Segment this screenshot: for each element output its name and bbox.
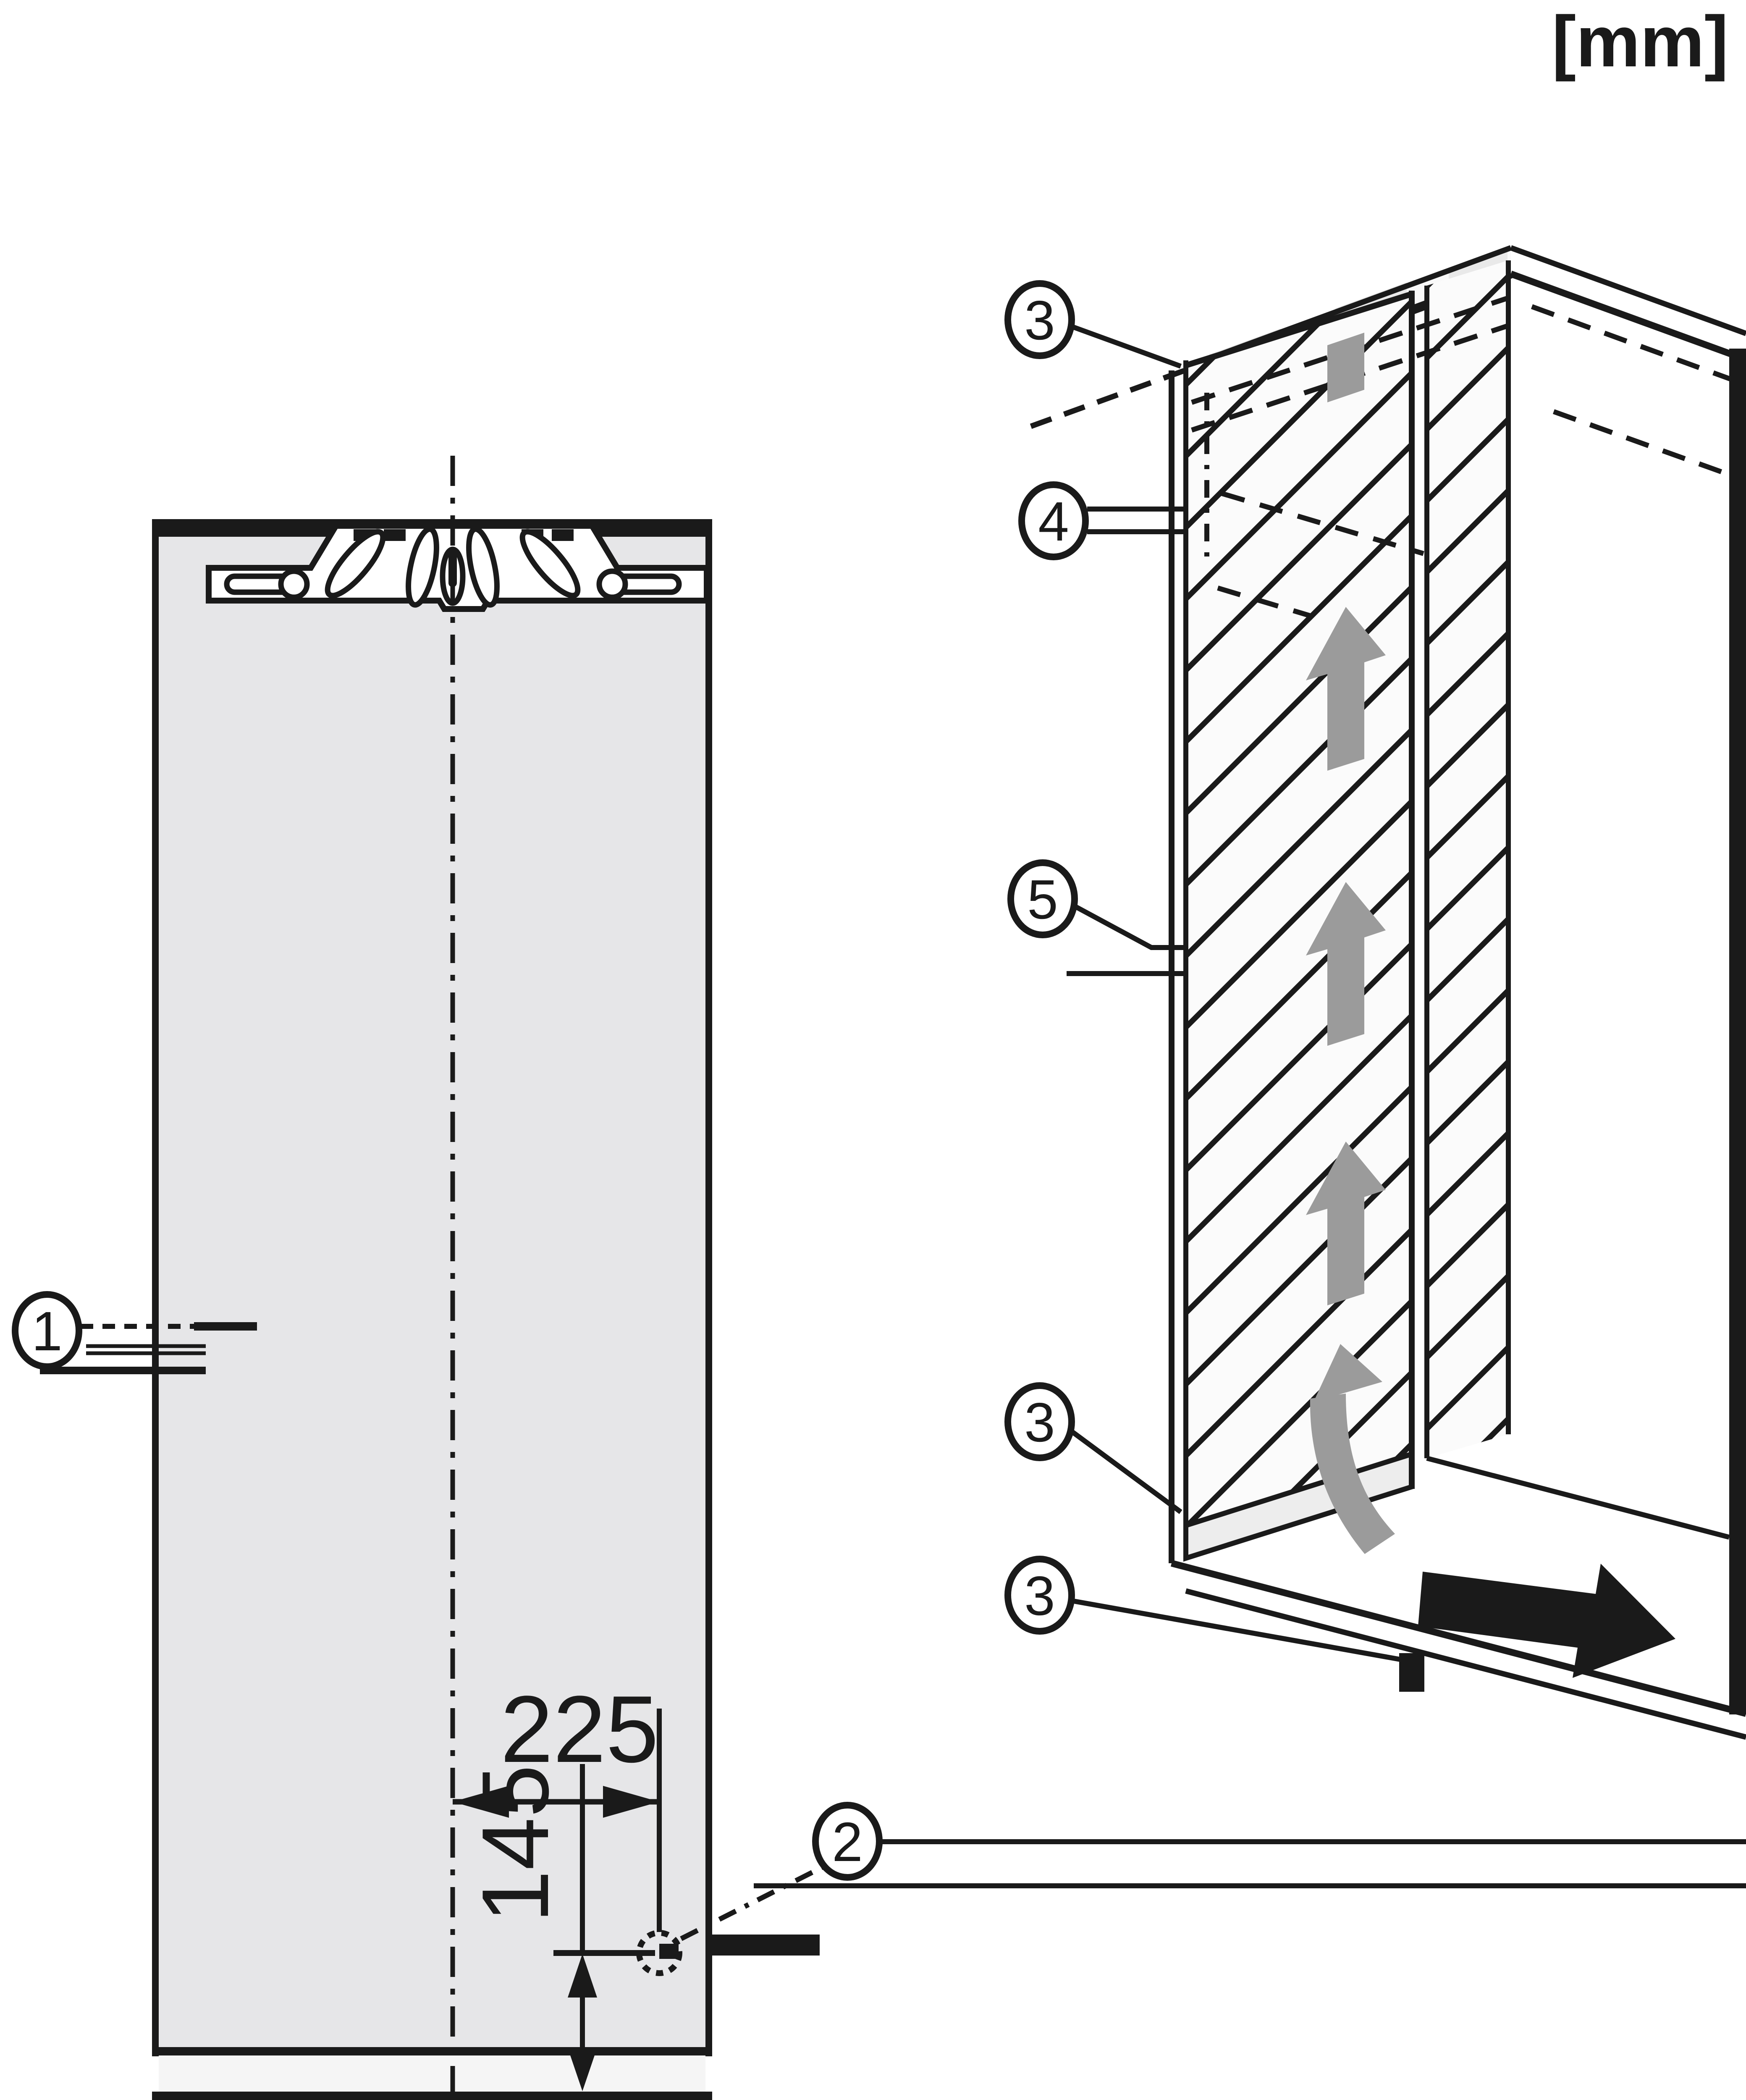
- panel-bottom-edge: [152, 2047, 712, 2055]
- plinth-strip: [159, 2055, 705, 2092]
- callout-1-label: 1: [31, 1300, 62, 1362]
- callout-3-top-label: 3: [1024, 289, 1055, 351]
- callout-3-bottom-label: 3: [1024, 1565, 1055, 1627]
- bracket-keyhole-left: [227, 571, 307, 597]
- plinth-bottom-edge: [152, 2092, 712, 2100]
- callout-3-mid-label: 3: [1024, 1391, 1055, 1453]
- callout-5: 5: [1011, 863, 1183, 974]
- callout-2: 2: [681, 1805, 1746, 1939]
- drill-point-edge-bar: [710, 1935, 820, 1956]
- dim-height-label: 145: [462, 1764, 568, 1923]
- callout-2-label: 2: [832, 1811, 863, 1873]
- callout-3-mid: 3: [1008, 1386, 1181, 1512]
- callout-3-top: 3: [1008, 283, 1181, 366]
- unit-label: [mm]: [1552, 1, 1728, 82]
- bracket-keyhole-right: [599, 571, 679, 597]
- callout-4-label: 4: [1038, 491, 1069, 552]
- cropped-right-wall: [1729, 349, 1746, 1714]
- installation-diagram: 225 145 1: [0, 0, 1746, 2100]
- hidden-edge-dashes-left: [1031, 368, 1192, 426]
- panel-right-edge: [705, 519, 712, 2056]
- callout-5-label: 5: [1027, 869, 1058, 930]
- panel-face: [157, 525, 707, 2050]
- niche-back-panel: [1427, 260, 1508, 1458]
- niche-isometric-view: 3 4 5 3 3: [1008, 246, 1746, 1737]
- drill-point-stub: [659, 1944, 679, 1959]
- bracket-tab: [384, 529, 406, 541]
- callout-4: 4: [1022, 485, 1183, 557]
- panel-left-edge: [152, 519, 159, 2056]
- niche-foot: [1399, 1653, 1424, 1692]
- bracket-tab: [552, 529, 574, 541]
